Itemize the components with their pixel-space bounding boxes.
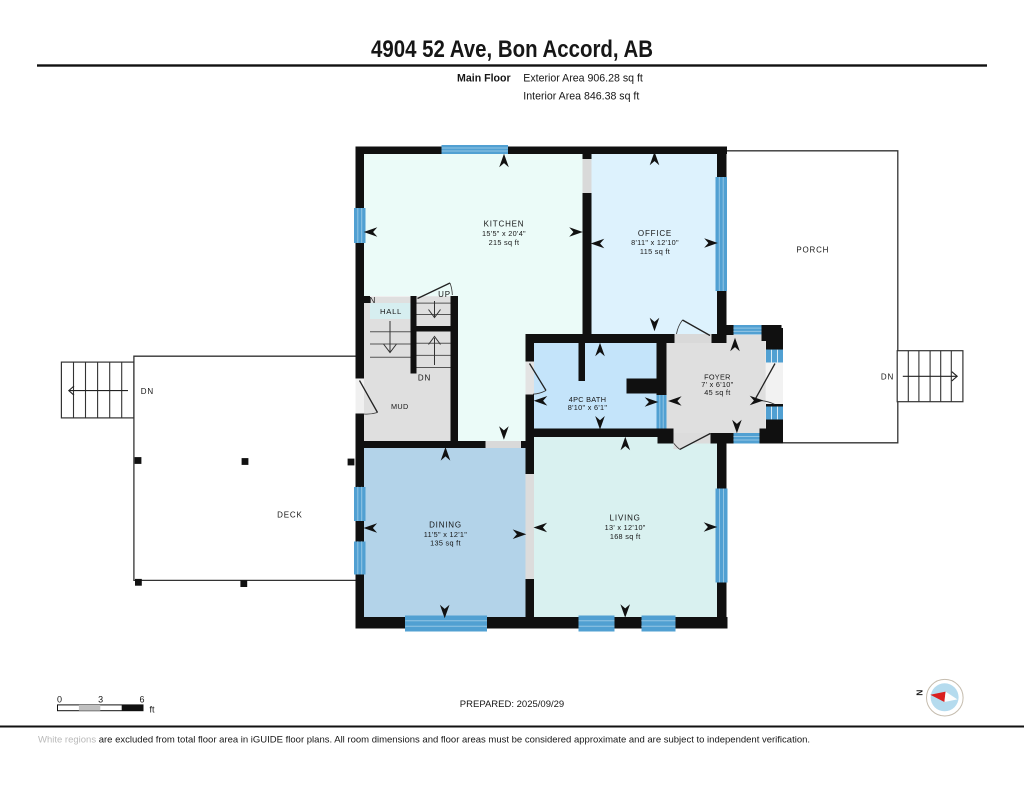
svg-text:15'5" x 20'4": 15'5" x 20'4": [482, 229, 526, 238]
svg-text:DINING: DINING: [429, 521, 462, 530]
svg-text:N: N: [914, 690, 924, 696]
svg-text:White regions are excluded fro: White regions are excluded from total fl…: [38, 735, 810, 746]
svg-text:168 sq ft: 168 sq ft: [610, 532, 641, 541]
svg-text:PORCH: PORCH: [796, 245, 829, 254]
svg-text:HALL: HALL: [380, 307, 402, 316]
svg-text:4904 52 Ave, Bon Accord, AB: 4904 52 Ave, Bon Accord, AB: [371, 36, 653, 63]
svg-text:3: 3: [98, 694, 103, 704]
svg-text:Interior Area 846.38 sq ft: Interior Area 846.38 sq ft: [523, 91, 639, 103]
svg-text:13' x 12'10": 13' x 12'10": [605, 523, 646, 532]
svg-text:8'11" x 12'10": 8'11" x 12'10": [631, 238, 679, 247]
svg-text:KITCHEN: KITCHEN: [484, 220, 525, 229]
svg-text:115 sq ft: 115 sq ft: [640, 247, 670, 256]
svg-text:8'10" x 6'1": 8'10" x 6'1": [568, 403, 608, 412]
svg-text:ft: ft: [150, 705, 156, 715]
svg-text:45 sq ft: 45 sq ft: [704, 388, 730, 397]
svg-text:Main Floor: Main Floor: [457, 73, 511, 85]
svg-text:DECK: DECK: [277, 510, 302, 519]
svg-text:Exterior Area 906.28 sq ft: Exterior Area 906.28 sq ft: [523, 73, 643, 85]
svg-text:OFFICE: OFFICE: [638, 229, 672, 238]
svg-text:DN: DN: [881, 372, 894, 381]
svg-text:PREPARED: 2025/09/29: PREPARED: 2025/09/29: [460, 699, 564, 710]
svg-text:UP: UP: [438, 290, 451, 299]
svg-text:MUD: MUD: [391, 402, 409, 411]
svg-text:DN: DN: [141, 387, 154, 396]
svg-text:0: 0: [57, 694, 62, 704]
svg-text:135 sq ft: 135 sq ft: [430, 539, 461, 548]
svg-text:DN: DN: [418, 373, 431, 382]
svg-text:LIVING: LIVING: [610, 514, 641, 523]
svg-text:215 sq ft: 215 sq ft: [489, 238, 520, 247]
svg-text:6: 6: [139, 694, 144, 704]
